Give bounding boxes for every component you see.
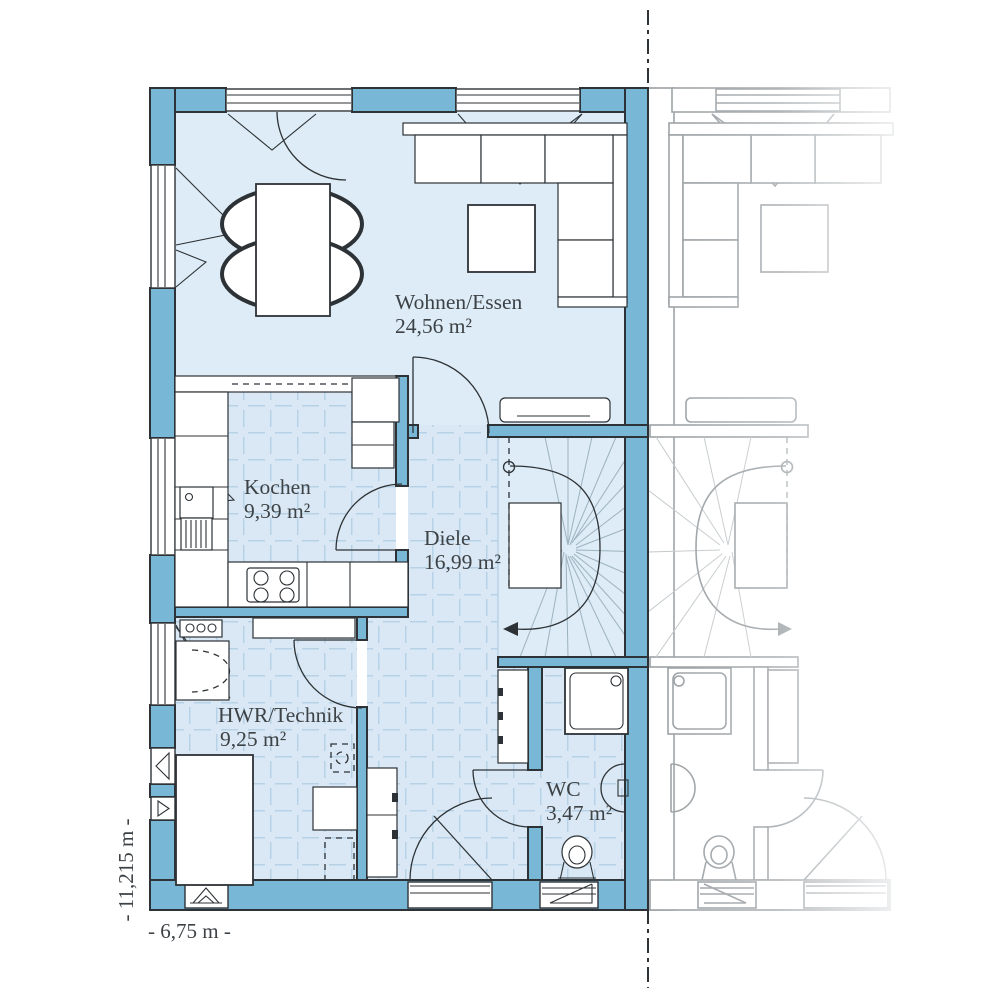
ghost-cabinet: [768, 670, 798, 763]
floor-plan-page: Wohnen/Essen 24,56 m² Kochen 9,39 m² Die…: [0, 0, 1000, 1000]
dining-table: [256, 184, 330, 316]
ghost-stair-newel: [735, 503, 787, 588]
ghost-sofa-cushion: [683, 183, 738, 240]
room-area-wc: 3,47 m²: [546, 801, 612, 825]
sofa-cushion: [481, 135, 545, 183]
hwr-appliance: [313, 787, 357, 830]
room-area-wohnen: 24,56 m²: [395, 314, 472, 338]
ghost-stair-wall: [650, 425, 808, 437]
stair-bottom-wall: [498, 657, 648, 667]
window-hwr: [151, 623, 175, 705]
stair-top-wall: [488, 425, 648, 437]
ghost-shower: [668, 668, 731, 734]
sofa-cushion: [558, 240, 613, 297]
room-area-diele: 16,99 m²: [424, 550, 501, 574]
ghost-sofa-end: [669, 297, 738, 307]
ghost-wc-wall: [754, 827, 768, 880]
terrace-door: [226, 89, 352, 111]
heat-pump-unit: [176, 755, 253, 885]
vent-left-2: [151, 797, 175, 820]
room-label-kochen: Kochen: [244, 475, 311, 499]
sofa-side: [613, 135, 627, 303]
vent-left-1: [151, 748, 175, 784]
ghost-sofa-cushion: [751, 135, 815, 183]
ghost-stair-wall: [650, 657, 798, 667]
room-area-kochen: 9,39 m²: [244, 499, 310, 523]
wardrobe: [367, 768, 397, 877]
sofa-cushion: [415, 135, 481, 183]
dimension-height: - 11,215 m -: [114, 818, 138, 921]
ghost-sofa-cushion: [815, 135, 881, 183]
sideboard: [500, 398, 610, 422]
stair-newel: [509, 503, 561, 588]
room-label-diele: Diele: [424, 526, 471, 550]
ghost-sofa-cushion: [683, 240, 738, 297]
room-area-hwr: 9,25 m²: [220, 727, 286, 751]
toilet: [562, 836, 592, 868]
ghost-sofa-side: [669, 135, 683, 303]
window-kochen: [151, 438, 175, 555]
hwr-shelf: [253, 618, 355, 638]
vent-bottom: [185, 882, 228, 908]
room-label-wohnen: Wohnen/Essen: [395, 290, 522, 314]
room-label-wc: WC: [546, 777, 581, 801]
floor-plan-svg: Wohnen/Essen 24,56 m² Kochen 9,39 m² Die…: [0, 0, 1000, 1000]
ghost-window: [716, 89, 840, 111]
ghost-sideboard: [686, 398, 796, 422]
sofa-back: [403, 123, 627, 135]
washing-machine: [176, 641, 229, 700]
ghost-wc-wall: [754, 667, 768, 770]
sofa-end: [558, 297, 627, 307]
sofa-cushion: [545, 135, 613, 183]
ghost-sofa-back: [669, 123, 893, 135]
window-wohnen: [151, 165, 175, 288]
window-top: [456, 89, 580, 111]
sofa-cushion: [558, 183, 613, 240]
coffee-table: [468, 205, 535, 272]
dimension-width: - 6,75 m -: [148, 919, 231, 943]
kitchen-sink: [180, 487, 213, 518]
ghost-coffee-table: [761, 205, 828, 272]
ghost-sofa-cushion: [683, 135, 751, 183]
kitchen-tall-cabinet: [352, 378, 399, 422]
room-label-hwr: HWR/Technik: [218, 703, 343, 727]
shower: [565, 668, 628, 734]
